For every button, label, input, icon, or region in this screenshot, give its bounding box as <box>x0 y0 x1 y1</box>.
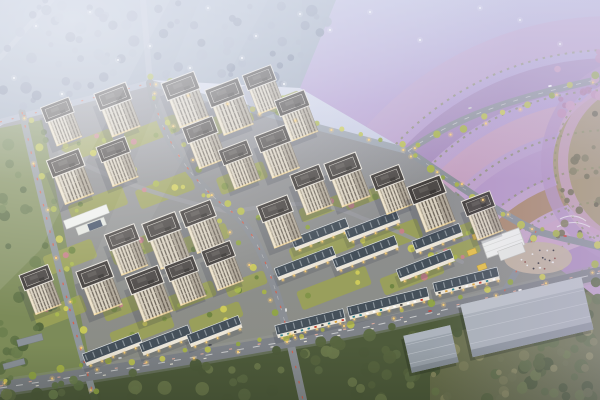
bottom-vignette <box>0 345 600 400</box>
right-haze <box>430 0 600 400</box>
aerial-render-image <box>0 0 600 400</box>
atmosphere <box>0 0 600 400</box>
aerial-render-screenshot <box>0 0 600 400</box>
